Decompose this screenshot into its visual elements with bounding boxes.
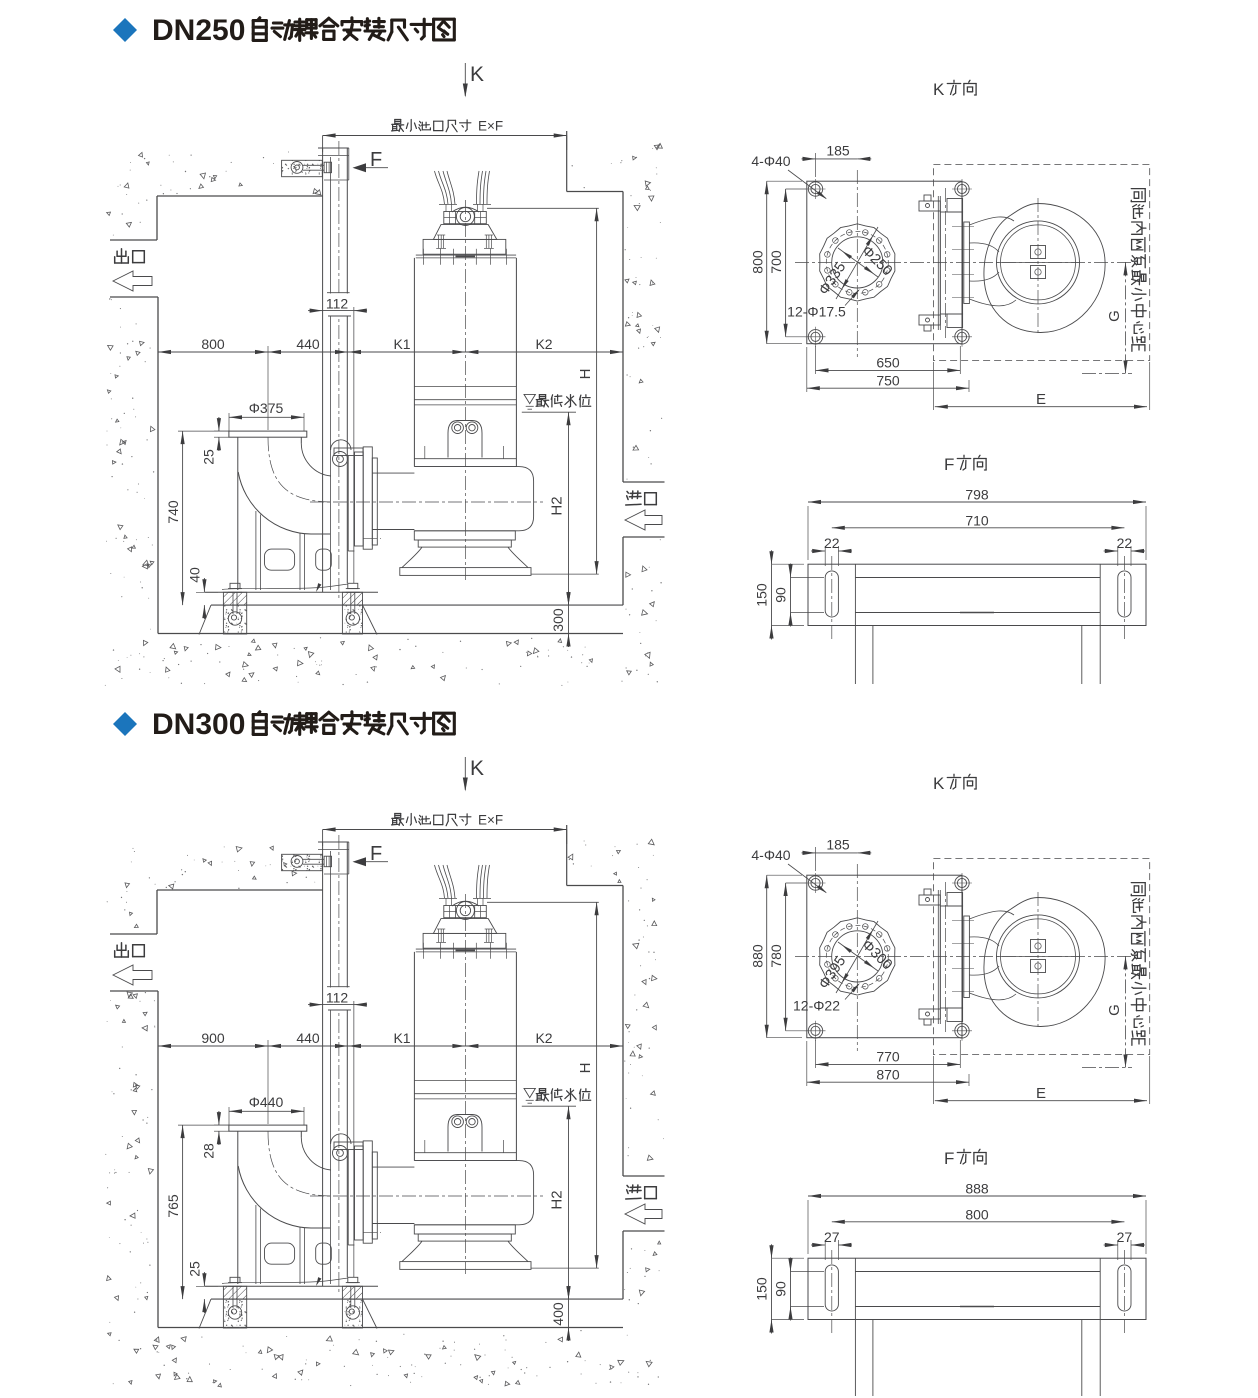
svg-text:4-Φ40: 4-Φ40: [751, 153, 790, 169]
svg-text:798: 798: [965, 487, 989, 503]
svg-text:12-Φ17.5: 12-Φ17.5: [787, 304, 846, 320]
svg-text:DN250: DN250: [152, 14, 245, 47]
svg-text:27: 27: [824, 1229, 840, 1245]
svg-text:800: 800: [201, 336, 225, 352]
svg-text:440: 440: [296, 336, 320, 352]
svg-text:22: 22: [824, 535, 840, 551]
svg-text:Φ300: Φ300: [858, 937, 895, 973]
svg-text:K: K: [470, 63, 484, 86]
svg-text:90: 90: [773, 1281, 789, 1297]
svg-text:G: G: [1106, 310, 1123, 322]
svg-text:700: 700: [768, 250, 784, 274]
svg-text:650: 650: [876, 355, 900, 371]
svg-text:765: 765: [165, 1194, 181, 1218]
svg-text:Φ375: Φ375: [249, 400, 284, 416]
svg-text:27: 27: [1117, 1229, 1133, 1245]
svg-text:K: K: [933, 774, 945, 793]
svg-text:780: 780: [768, 944, 784, 968]
svg-text:870: 870: [876, 1066, 900, 1082]
svg-text:28: 28: [201, 1143, 217, 1159]
svg-text:22: 22: [1117, 535, 1133, 551]
svg-text:750: 750: [876, 372, 900, 388]
svg-text:185: 185: [826, 142, 850, 158]
svg-text:G: G: [1106, 1004, 1123, 1016]
svg-text:900: 900: [201, 1030, 225, 1046]
svg-text:740: 740: [165, 500, 181, 524]
svg-text:Φ395: Φ395: [816, 953, 849, 992]
svg-text:E×F: E×F: [478, 813, 503, 828]
svg-text:880: 880: [750, 944, 766, 968]
svg-text:440: 440: [296, 1030, 320, 1046]
svg-text:800: 800: [750, 250, 766, 274]
svg-text:F: F: [944, 1149, 954, 1168]
svg-text:710: 710: [965, 512, 989, 528]
svg-text:H2: H2: [549, 496, 566, 515]
svg-text:Φ335: Φ335: [816, 259, 849, 298]
svg-text:K1: K1: [393, 336, 410, 352]
svg-text:800: 800: [965, 1206, 989, 1222]
svg-text:K2: K2: [535, 1030, 552, 1046]
svg-text:K: K: [933, 80, 945, 99]
svg-text:Φ440: Φ440: [249, 1094, 284, 1110]
svg-text:F: F: [370, 843, 382, 865]
svg-text:H: H: [577, 369, 594, 380]
svg-text:888: 888: [965, 1181, 989, 1197]
svg-text:K1: K1: [393, 1030, 410, 1046]
svg-text:770: 770: [876, 1049, 900, 1065]
svg-text:112: 112: [326, 989, 349, 1005]
svg-text:150: 150: [754, 1277, 770, 1301]
svg-text:4-Φ40: 4-Φ40: [751, 847, 790, 863]
svg-text:H2: H2: [549, 1190, 566, 1209]
svg-text:K2: K2: [535, 336, 552, 352]
svg-text:25: 25: [187, 1261, 203, 1277]
svg-text:40: 40: [187, 567, 203, 583]
svg-text:E: E: [1036, 391, 1046, 408]
svg-text:12-Φ22: 12-Φ22: [793, 998, 840, 1014]
svg-text:DN300: DN300: [152, 708, 245, 741]
svg-text:90: 90: [773, 587, 789, 603]
svg-text:150: 150: [754, 583, 770, 607]
svg-text:Φ250: Φ250: [858, 243, 895, 279]
svg-text:E×F: E×F: [478, 119, 503, 134]
svg-text:F: F: [370, 149, 382, 171]
svg-text:400: 400: [550, 1302, 566, 1326]
svg-text:F: F: [944, 455, 954, 474]
svg-text:300: 300: [550, 608, 566, 632]
svg-text:25: 25: [201, 449, 217, 465]
svg-text:185: 185: [826, 836, 850, 852]
svg-text:H: H: [577, 1063, 594, 1074]
svg-text:112: 112: [326, 295, 349, 311]
svg-text:E: E: [1036, 1085, 1046, 1102]
svg-text:K: K: [470, 757, 484, 780]
